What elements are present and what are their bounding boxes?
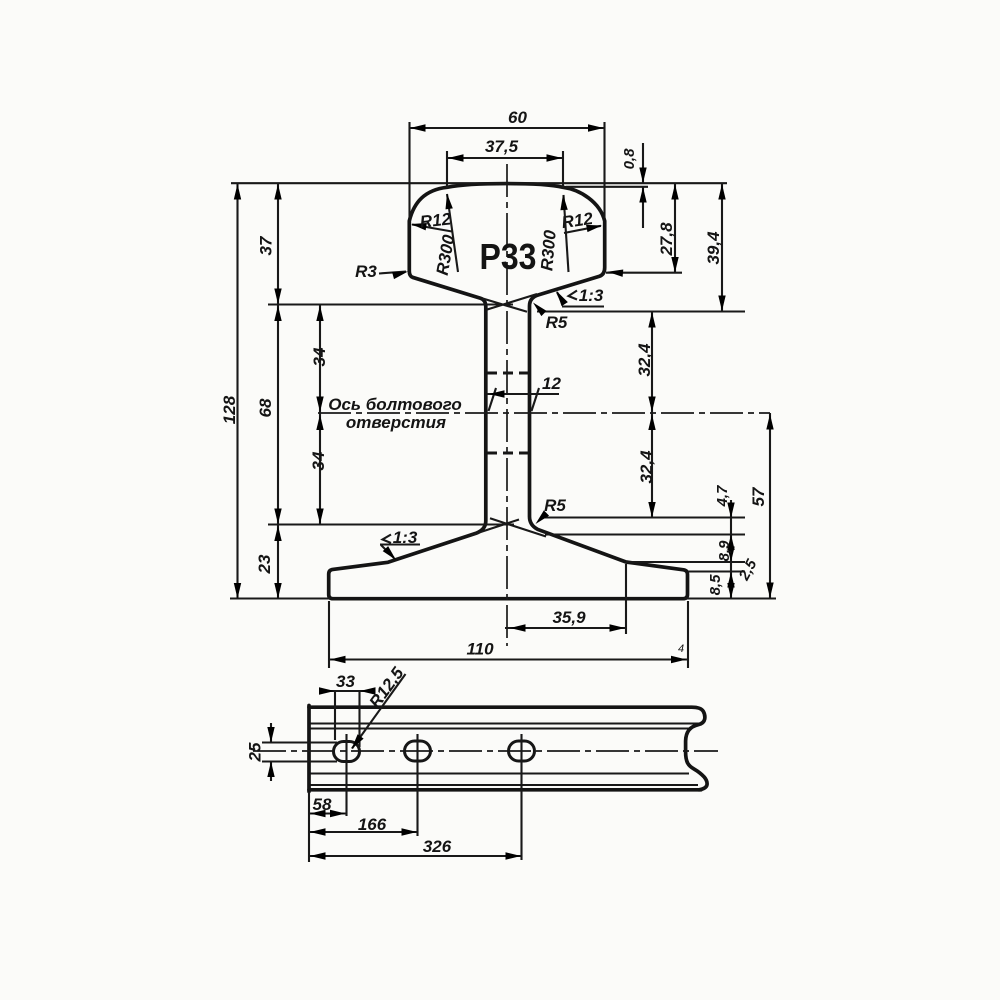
svg-text:57: 57	[749, 486, 768, 506]
svg-text:37: 37	[257, 235, 276, 255]
svg-text:326: 326	[423, 837, 452, 856]
svg-text:R3: R3	[355, 262, 377, 281]
svg-text:166: 166	[358, 815, 387, 834]
svg-text:0,8: 0,8	[621, 148, 638, 170]
svg-text:1:3: 1:3	[393, 528, 418, 547]
svg-text:32,4: 32,4	[635, 343, 654, 377]
svg-text:25: 25	[246, 742, 265, 762]
svg-text:R5: R5	[546, 313, 568, 332]
svg-text:34: 34	[310, 347, 329, 366]
svg-text:R12: R12	[419, 209, 453, 231]
svg-text:1:3: 1:3	[579, 286, 604, 305]
svg-text:32,4: 32,4	[637, 450, 656, 484]
svg-text:8,9: 8,9	[716, 540, 733, 562]
svg-text:4,7: 4,7	[714, 485, 731, 508]
svg-text:R5: R5	[544, 496, 566, 515]
svg-text:отверстия: отверстия	[346, 413, 446, 432]
svg-text:37,5: 37,5	[485, 137, 519, 156]
svg-text:60: 60	[508, 108, 527, 127]
svg-text:8,5: 8,5	[707, 574, 724, 596]
svg-text:12: 12	[542, 374, 561, 393]
svg-text:68: 68	[256, 398, 275, 417]
svg-text:39,4: 39,4	[704, 231, 723, 265]
svg-text:35,9: 35,9	[552, 608, 586, 627]
svg-text:27,8: 27,8	[657, 222, 676, 257]
svg-text:33: 33	[336, 672, 355, 691]
svg-text:Р33: Р33	[480, 236, 537, 277]
svg-text:128: 128	[220, 395, 239, 424]
svg-text:Ось болтового: Ось болтового	[328, 395, 462, 414]
svg-text:58: 58	[313, 795, 332, 814]
svg-text:110: 110	[466, 640, 494, 659]
svg-text:4: 4	[678, 643, 684, 655]
svg-text:23: 23	[255, 554, 274, 574]
svg-text:34: 34	[309, 451, 328, 470]
svg-text:R300: R300	[537, 229, 560, 272]
